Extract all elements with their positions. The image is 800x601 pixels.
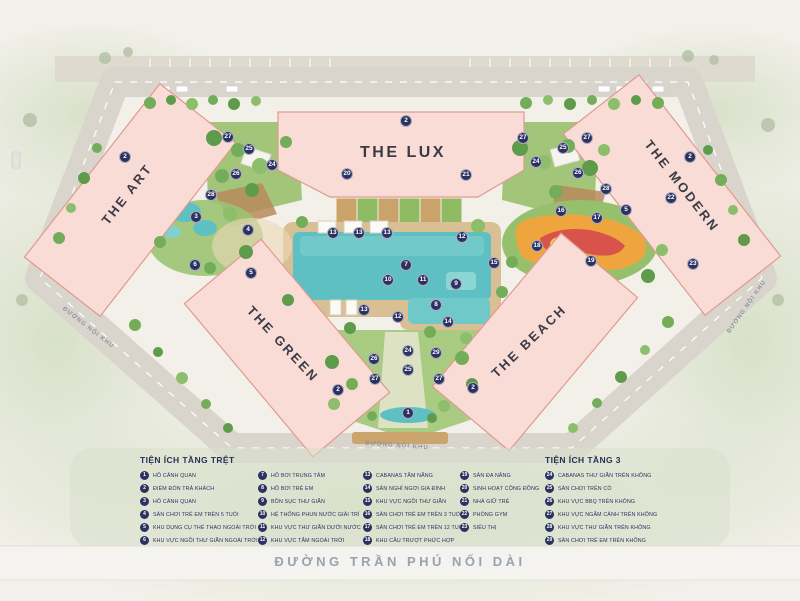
amenity-marker: 2	[119, 151, 131, 163]
amenity-marker: 24	[402, 345, 414, 357]
legend-item-number: 22	[460, 510, 469, 519]
legend-item: 29 SÂN CHƠI TRẺ EM TRÊN KHÔNG	[545, 534, 657, 547]
amenity-marker: 29	[430, 347, 442, 359]
legend-item-label: HỒ BƠI TRUNG TÂM	[271, 472, 325, 479]
legend-item-number: 18	[363, 536, 372, 545]
amenity-marker: 27	[222, 131, 234, 143]
amenity-marker: 28	[600, 183, 612, 195]
amenity-marker: 27	[369, 373, 381, 385]
legend-item-number: 5	[140, 523, 149, 532]
legend-item-number: 3	[140, 497, 149, 506]
amenity-marker: 12	[456, 231, 468, 243]
amenity-marker: 18	[531, 240, 543, 252]
legend-item-label: SIÊU THỊ	[473, 524, 496, 531]
legend-column-1: 1 HỒ CẢNH QUAN 2 ĐIỂM ĐÓN TRẢ KHÁCH 3 HỒ…	[140, 469, 258, 547]
legend-item-number: 29	[545, 536, 554, 545]
legend-item: 15 KHU VỰC NGỒI THƯ GIÃN	[363, 495, 465, 508]
amenity-marker: 25	[243, 143, 255, 155]
amenity-marker: 10	[382, 274, 394, 286]
legend-ground-title: TIỆN ÍCH TẦNG TRỆT	[140, 455, 235, 465]
amenity-marker: 24	[530, 156, 542, 168]
legend-item-number: 23	[460, 523, 469, 532]
legend-item: 27 KHU VỰC NGẮM CẢNH TRÊN KHÔNG	[545, 508, 657, 521]
legend-item: 22 PHÒNG GYM	[460, 508, 539, 521]
legend-item: 9 BỒN SỤC THƯ GIÃN	[258, 495, 361, 508]
legend-item-label: PHÒNG GYM	[473, 511, 507, 518]
legend-item-label: KHU VỰC BBQ TRÊN KHÔNG	[558, 498, 635, 505]
legend-item: 18 KHU CẦU TRƯỢT PHỨC HỢP	[363, 534, 465, 547]
legend-item-label: SÂN NGHỈ NGƠI GIA ĐÌNH	[376, 485, 445, 492]
legend-item-number: 21	[460, 497, 469, 506]
legend-item: 6 KHU VỰC NGỒI THƯ GIÃN NGOÀI TRỜI	[140, 534, 258, 547]
legend-item-label: SINH HOẠT CỘNG ĐỒNG	[473, 485, 539, 492]
legend-item-label: HỒ CẢNH QUAN	[153, 498, 196, 505]
legend-item-number: 19	[460, 471, 469, 480]
legend-item: 5 KHU DỤNG CỤ THỂ THAO NGOÀI TRỜI	[140, 521, 258, 534]
legend-column-2: 7 HỒ BƠI TRUNG TÂM 8 HỒ BƠI TRẺ EM 9 BỒN…	[258, 469, 361, 547]
amenity-marker: 2	[332, 384, 344, 396]
amenity-marker: 27	[581, 132, 593, 144]
amenity-marker: 8	[430, 299, 442, 311]
legend-floor3-title: TIỆN ÍCH TẦNG 3	[545, 455, 621, 465]
legend-item: 24 CABANAS THƯ GIÃN TRÊN KHÔNG	[545, 469, 657, 482]
legend-item: 14 SÂN NGHỈ NGƠI GIA ĐÌNH	[363, 482, 465, 495]
amenity-marker: 27	[433, 373, 445, 385]
legend-item-label: HỒ CẢNH QUAN	[153, 472, 196, 479]
legend-item-label: SÂN ĐA NĂNG	[473, 472, 511, 479]
legend-item-number: 27	[545, 510, 554, 519]
amenity-marker: 17	[591, 212, 603, 224]
legend-item-label: CABANAS TẮM NẮNG	[376, 472, 433, 479]
legend-item-number: 1	[140, 471, 149, 480]
amenity-marker: 25	[402, 364, 414, 376]
amenity-marker: 20	[341, 168, 353, 180]
amenity-marker: 25	[557, 142, 569, 154]
legend-item: 16 SÂN CHƠI TRẺ EM TRÊN 3 TUỔI	[363, 508, 465, 521]
legend-item: 1 HỒ CẢNH QUAN	[140, 469, 258, 482]
legend-item: 23 SIÊU THỊ	[460, 521, 539, 534]
legend-item: 25 SÂN CHƠI TRÊN CỎ	[545, 482, 657, 495]
amenity-marker: 5	[245, 267, 257, 279]
legend-item-label: SÂN CHƠI TRẺ EM TRÊN 5 TUỔI	[153, 511, 239, 518]
legend-item: 26 KHU VỰC BBQ TRÊN KHÔNG	[545, 495, 657, 508]
amenity-marker: 28	[205, 189, 217, 201]
amenity-marker: 21	[460, 169, 472, 181]
amenity-marker: 14	[442, 316, 454, 328]
legend-item-number: 4	[140, 510, 149, 519]
legend-item: 3 HỒ CẢNH QUAN	[140, 495, 258, 508]
amenity-marker: 6	[189, 259, 201, 271]
amenity-marker: 7	[400, 259, 412, 271]
map-overlay: THE ARTTHE LUXTHE MODERNTHE GREENTHE BEA…	[0, 0, 800, 601]
legend-item-label: SÂN CHƠI TRẺ EM TRÊN 3 TUỔI	[376, 511, 462, 518]
legend-item: 19 SÂN ĐA NĂNG	[460, 469, 539, 482]
amenity-marker: 15	[488, 257, 500, 269]
legend-item: 11 KHU VỰC THƯ GIÃN DƯỚI NƯỚC	[258, 521, 361, 534]
amenity-marker: 4	[242, 224, 254, 236]
legend-item-label: KHU VỰC THƯ GIÃN DƯỚI NƯỚC	[271, 524, 361, 531]
amenity-marker: 23	[687, 258, 699, 270]
legend-item-label: KHU VỰC NGẮM CẢNH TRÊN KHÔNG	[558, 511, 657, 518]
legend-item: 17 SÂN CHƠI TRẺ EM TRÊN 12 TUỔI	[363, 521, 465, 534]
amenity-marker: 11	[417, 274, 429, 286]
legend-item-number: 20	[460, 484, 469, 493]
legend-item-label: SÂN CHƠI TRẺ EM TRÊN 12 TUỔI	[376, 524, 465, 531]
legend-item-label: KHU CẦU TRƯỢT PHỨC HỢP	[376, 537, 454, 544]
amenity-marker: 2	[467, 382, 479, 394]
legend-item-number: 7	[258, 471, 267, 480]
legend-item: 8 HỒ BƠI TRẺ EM	[258, 482, 361, 495]
amenity-marker: 13	[358, 304, 370, 316]
legend-item-label: KHU VỰC NGỒI THƯ GIÃN	[376, 498, 446, 505]
amenity-marker: 13	[327, 227, 339, 239]
legend-item-number: 8	[258, 484, 267, 493]
amenity-marker: 2	[400, 115, 412, 127]
legend-item-label: KHU VỰC THƯ GIÃN TRÊN KHÔNG	[558, 524, 651, 531]
amenity-marker: 2	[684, 151, 696, 163]
masterplan-image: THE ARTTHE LUXTHE MODERNTHE GREENTHE BEA…	[0, 0, 800, 601]
legend-item: 28 KHU VỰC THƯ GIÃN TRÊN KHÔNG	[545, 521, 657, 534]
legend-item-label: HỆ THỐNG PHUN NƯỚC GIẢI TRÍ	[271, 511, 360, 518]
amenity-marker: 26	[230, 168, 242, 180]
legend-item: 4 SÂN CHƠI TRẺ EM TRÊN 5 TUỔI	[140, 508, 258, 521]
legend-item-label: KHU VỰC TẮM NGOÀI TRỜI	[271, 537, 344, 544]
amenity-marker: 16	[555, 205, 567, 217]
legend-item: 21 NHÀ GIỮ TRẺ	[460, 495, 539, 508]
legend-item: 7 HỒ BƠI TRUNG TÂM	[258, 469, 361, 482]
legend-item-number: 26	[545, 497, 554, 506]
legend-item-label: BỒN SỤC THƯ GIÃN	[271, 498, 325, 505]
legend-item-number: 16	[363, 510, 372, 519]
legend-item-number: 10	[258, 510, 267, 519]
legend-item-label: CABANAS THƯ GIÃN TRÊN KHÔNG	[558, 472, 651, 479]
amenity-marker: 19	[585, 255, 597, 267]
legend-column-4: 19 SÂN ĐA NĂNG 20 SINH HOẠT CỘNG ĐỒNG 21…	[460, 469, 539, 534]
amenity-marker: 5	[620, 204, 632, 216]
legend-item: 12 KHU VỰC TẮM NGOÀI TRỜI	[258, 534, 361, 547]
legend-item-label: SÂN CHƠI TRẺ EM TRÊN KHÔNG	[558, 537, 646, 544]
legend-item-label: KHU DỤNG CỤ THỂ THAO NGOÀI TRỜI	[153, 524, 256, 531]
main-street-label: ĐƯỜNG TRẦN PHÚ NỐI DÀI	[0, 554, 800, 569]
legend-column-5: 24 CABANAS THƯ GIÃN TRÊN KHÔNG 25 SÂN CH…	[545, 469, 657, 547]
legend-item-number: 6	[140, 536, 149, 545]
legend-item-label: HỒ BƠI TRẺ EM	[271, 485, 313, 492]
legend-item-number: 9	[258, 497, 267, 506]
legend-item-number: 2	[140, 484, 149, 493]
legend-item-number: 13	[363, 471, 372, 480]
legend-item: 20 SINH HOẠT CỘNG ĐỒNG	[460, 482, 539, 495]
legend-item-number: 15	[363, 497, 372, 506]
legend-item-number: 14	[363, 484, 372, 493]
amenity-marker: 13	[381, 227, 393, 239]
legend-item-number: 28	[545, 523, 554, 532]
legend-item: 2 ĐIỂM ĐÓN TRẢ KHÁCH	[140, 482, 258, 495]
legend-item-number: 24	[545, 471, 554, 480]
amenity-marker: 9	[450, 278, 462, 290]
legend-item: 13 CABANAS TẮM NẮNG	[363, 469, 465, 482]
amenity-marker: 3	[190, 211, 202, 223]
amenity-marker: 24	[266, 159, 278, 171]
legend-item-label: ĐIỂM ĐÓN TRẢ KHÁCH	[153, 485, 214, 492]
amenity-marker: 27	[517, 132, 529, 144]
amenity-marker: 26	[368, 353, 380, 365]
legend-item-number: 25	[545, 484, 554, 493]
legend-item-number: 17	[363, 523, 372, 532]
legend-item-number: 11	[258, 523, 267, 532]
amenity-marker: 12	[392, 311, 404, 323]
legend-item: 10 HỆ THỐNG PHUN NƯỚC GIẢI TRÍ	[258, 508, 361, 521]
amenity-marker: 22	[665, 192, 677, 204]
legend-item-label: SÂN CHƠI TRÊN CỎ	[558, 485, 612, 492]
legend-item-number: 12	[258, 536, 267, 545]
amenity-marker: 1	[402, 407, 414, 419]
legend-column-3: 13 CABANAS TẮM NẮNG 14 SÂN NGHỈ NGƠI GIA…	[363, 469, 465, 547]
amenity-marker: 26	[572, 167, 584, 179]
legend-item-label: KHU VỰC NGỒI THƯ GIÃN NGOÀI TRỜI	[153, 537, 258, 544]
legend-item-label: NHÀ GIỮ TRẺ	[473, 498, 509, 505]
amenity-marker: 13	[353, 227, 365, 239]
